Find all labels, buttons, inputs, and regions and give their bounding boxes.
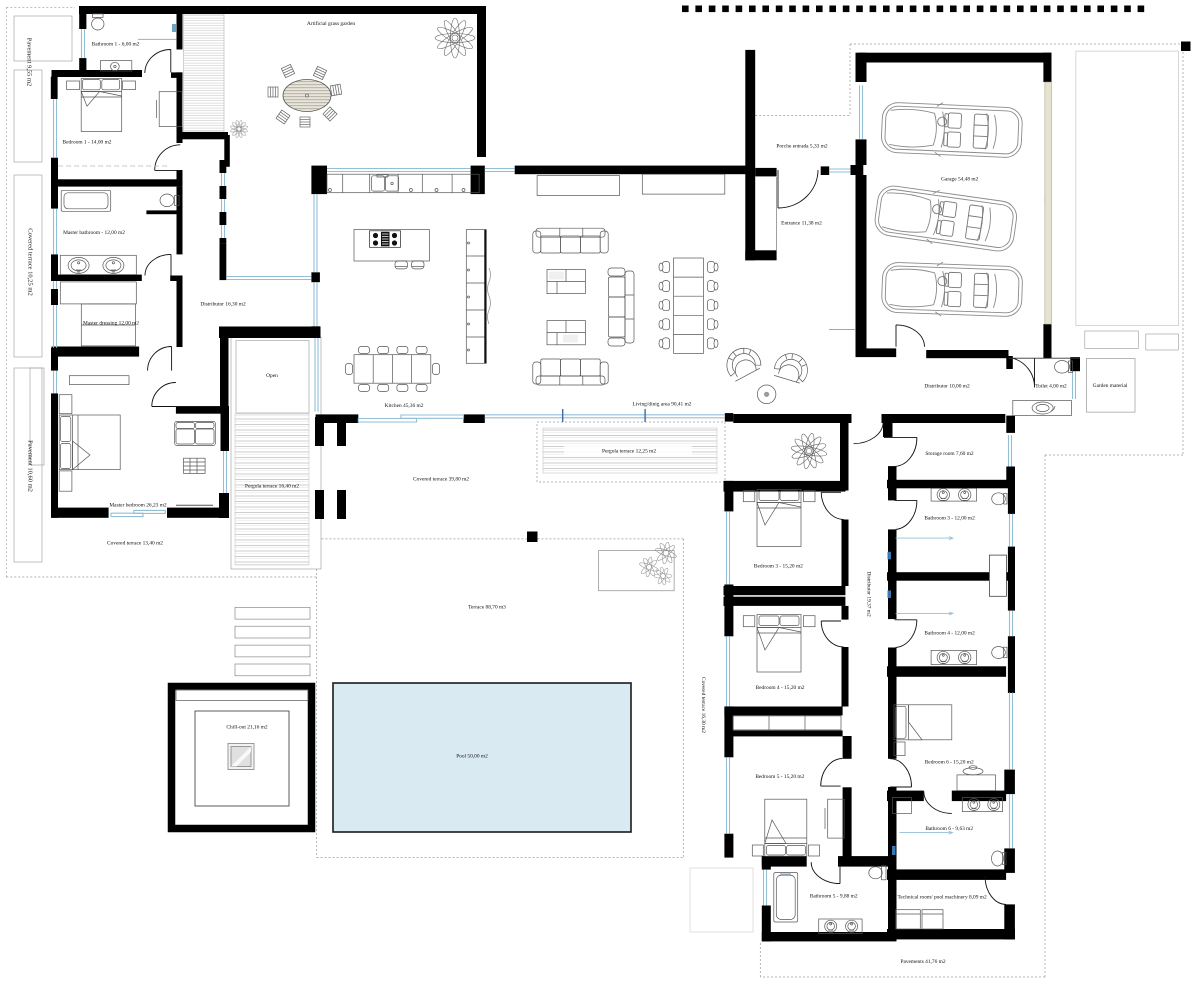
svg-text:Bedroom 1 - 14,00 m2: Bedroom 1 - 14,00 m2	[63, 140, 112, 146]
svg-text:Bathroom 1 - 6,00 m2: Bathroom 1 - 6,00 m2	[92, 42, 140, 48]
svg-text:Garden material: Garden material	[1093, 383, 1128, 389]
svg-text:Open: Open	[266, 373, 278, 379]
svg-text:Covered terrace 16,30 m2: Covered terrace 16,30 m2	[700, 677, 706, 733]
svg-text:Chill-out 21,16 m2: Chill-out 21,16 m2	[226, 725, 267, 731]
svg-text:Storage room 7,60 m2: Storage room 7,60 m2	[925, 451, 974, 457]
svg-text:Terrace 88,70 m3: Terrace 88,70 m3	[468, 605, 506, 611]
svg-text:Pool 50,00 m2: Pool 50,00 m2	[456, 754, 488, 760]
svg-text:Master dressing 12,00 m2: Master dressing 12,00 m2	[83, 321, 139, 327]
svg-text:Artificial grass garden: Artificial grass garden	[307, 20, 356, 27]
svg-text:Distributor 19,37 m2: Distributor 19,37 m2	[866, 571, 872, 617]
svg-text:Pergola terrace 12,25 m2: Pergola terrace 12,25 m2	[602, 449, 656, 455]
svg-text:Master bedroom 26,23 m2: Master bedroom 26,23 m2	[109, 503, 166, 509]
svg-text:Bathroom 6 - 9,63 m2: Bathroom 6 - 9,63 m2	[925, 826, 973, 832]
svg-text:Bathroom 3 - 12,00 m2: Bathroom 3 - 12,00 m2	[924, 516, 975, 522]
svg-text:Covered terrace 39,80 m2: Covered terrace 39,80 m2	[413, 477, 469, 483]
svg-text:Bathroom 5 - 9,88 m2: Bathroom 5 - 9,88 m2	[810, 894, 858, 900]
svg-text:Bedroom 5 - 15,20 m2: Bedroom 5 - 15,20 m2	[755, 774, 804, 780]
svg-text:Living/dinig area 90,41 m2: Living/dinig area 90,41 m2	[633, 402, 692, 408]
svg-text:Pavement 9,55 m2: Pavement 9,55 m2	[26, 38, 33, 87]
svg-text:Distributor 16,30 m2: Distributor 16,30 m2	[200, 302, 246, 308]
svg-text:Bedroom 3 - 15,20 m2: Bedroom 3 - 15,20 m2	[754, 564, 803, 570]
svg-text:Bedroom 6 - 15,20 m2: Bedroom 6 - 15,20 m2	[925, 760, 974, 766]
svg-text:Covered terrace 13,40 m2: Covered terrace 13,40 m2	[107, 541, 163, 547]
svg-text:Garage 54,48 m2: Garage 54,48 m2	[941, 177, 979, 183]
svg-text:Entrance 11,38 m2: Entrance 11,38 m2	[781, 221, 822, 227]
svg-text:Toilet 4,00 m2: Toilet 4,00 m2	[1035, 384, 1067, 390]
svg-text:Technical room/ pool machinery: Technical room/ pool machinery 8,09 m2	[898, 895, 987, 901]
svg-text:Pavements 41,76 m2: Pavements 41,76 m2	[900, 959, 945, 965]
svg-text:Master bathroom - 12,00 m2: Master bathroom - 12,00 m2	[63, 230, 125, 236]
svg-text:Kitchen 45,36 m2: Kitchen 45,36 m2	[385, 403, 424, 409]
svg-text:Bedroom 4 - 15,20 m2: Bedroom 4 - 15,20 m2	[756, 685, 805, 691]
svg-text:Pavement 10,60 m2: Pavement 10,60 m2	[27, 440, 34, 492]
svg-text:Porche entrada 5,33 m2: Porche entrada 5,33 m2	[776, 144, 827, 150]
svg-text:Covered terrace 10,25 m2: Covered terrace 10,25 m2	[27, 228, 34, 296]
svg-text:Distributor 10,00 m2: Distributor 10,00 m2	[924, 384, 970, 390]
svg-text:Bathroom 4 - 12,00 m2: Bathroom 4 - 12,00 m2	[924, 631, 975, 637]
svg-text:Pergola terrace 16,40 m2: Pergola terrace 16,40 m2	[245, 484, 299, 490]
